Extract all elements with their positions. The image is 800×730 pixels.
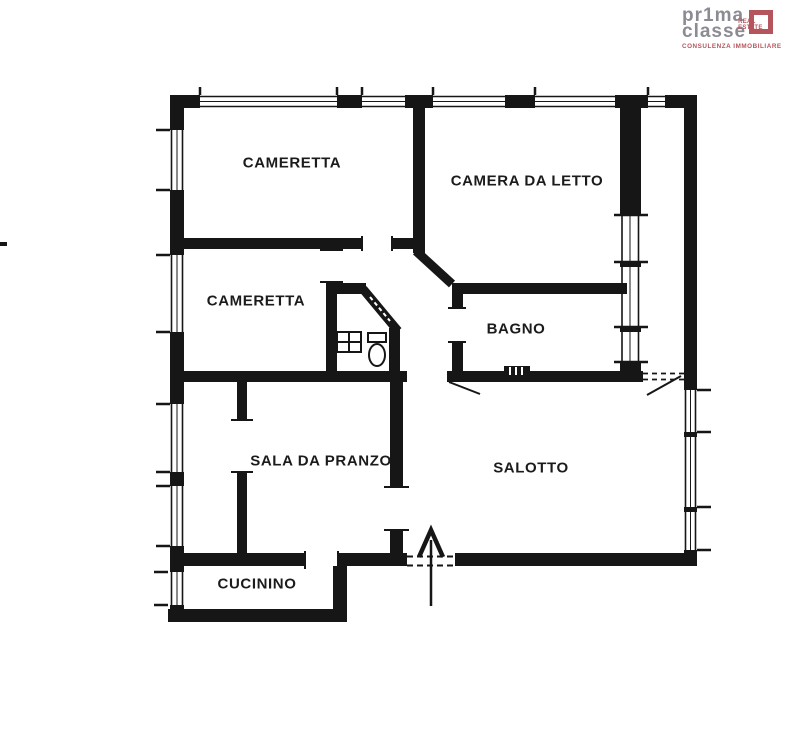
logo-tagline: CONSULENZA IMMOBILIARE bbox=[682, 43, 796, 50]
floor-plan-drawing bbox=[0, 0, 800, 730]
wc-fixtures bbox=[337, 332, 386, 366]
room-label-sala-da-pranzo: SALA DA PRANZO bbox=[250, 453, 391, 470]
room-label-cameretta-2: CAMERETTA bbox=[207, 293, 305, 310]
room-label-salotto: SALOTTO bbox=[493, 460, 569, 477]
interior-walls bbox=[170, 103, 643, 553]
logo-square-icon: REAL ESTATE bbox=[749, 10, 773, 34]
logo-real-estate-text: REAL ESTATE bbox=[738, 19, 763, 31]
room-label-camera-da-letto: CAMERA DA LETTO bbox=[451, 173, 604, 190]
logo-brand-text: pr1ma classe bbox=[682, 8, 746, 40]
logo-brand-line2: classe bbox=[682, 24, 746, 40]
outer-walls bbox=[168, 95, 697, 622]
floorplan-page: CAMERETTA CAMERA DA LETTO CAMERETTA BAGN… bbox=[0, 0, 800, 730]
room-label-bagno: BAGNO bbox=[487, 321, 546, 338]
agency-logo: pr1ma classe REAL ESTATE CONSULENZA IMMO… bbox=[682, 8, 796, 50]
toilet-icon bbox=[368, 333, 386, 366]
sink-icon bbox=[337, 332, 361, 352]
entrance-arrow-icon bbox=[419, 530, 443, 606]
room-label-cucinino: CUCININO bbox=[218, 576, 297, 593]
radiator-icon bbox=[504, 366, 530, 376]
window-symbols bbox=[172, 97, 696, 606]
stray-mark bbox=[0, 242, 7, 246]
room-label-cameretta-1: CAMERETTA bbox=[243, 155, 341, 172]
